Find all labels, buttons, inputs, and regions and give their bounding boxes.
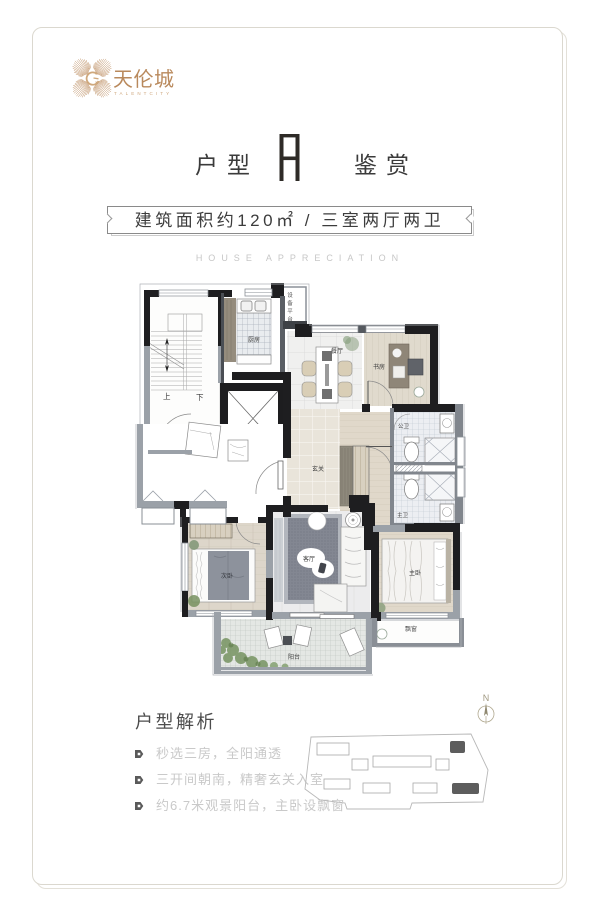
svg-text:书房: 书房 [373, 363, 385, 371]
svg-text:公卫: 公卫 [398, 423, 410, 430]
svg-text:天伦城: 天伦城 [113, 68, 175, 91]
svg-text:玄关: 玄关 [312, 465, 324, 473]
svg-text:TALENTCITY: TALENTCITY [114, 91, 172, 96]
svg-text:次卧: 次卧 [221, 572, 233, 580]
svg-text:飘窗: 飘窗 [405, 625, 417, 633]
svg-text:客厅: 客厅 [303, 555, 315, 563]
svg-text:上: 上 [163, 392, 171, 401]
svg-text:阳台: 阳台 [288, 653, 300, 661]
svg-text:下: 下 [196, 393, 204, 402]
svg-text:主卧: 主卧 [409, 569, 421, 577]
svg-text:主卫: 主卫 [397, 511, 409, 519]
svg-text:餐厅: 餐厅 [331, 347, 343, 355]
svg-text:N: N [483, 693, 490, 703]
svg-text:厨房: 厨房 [248, 336, 260, 344]
